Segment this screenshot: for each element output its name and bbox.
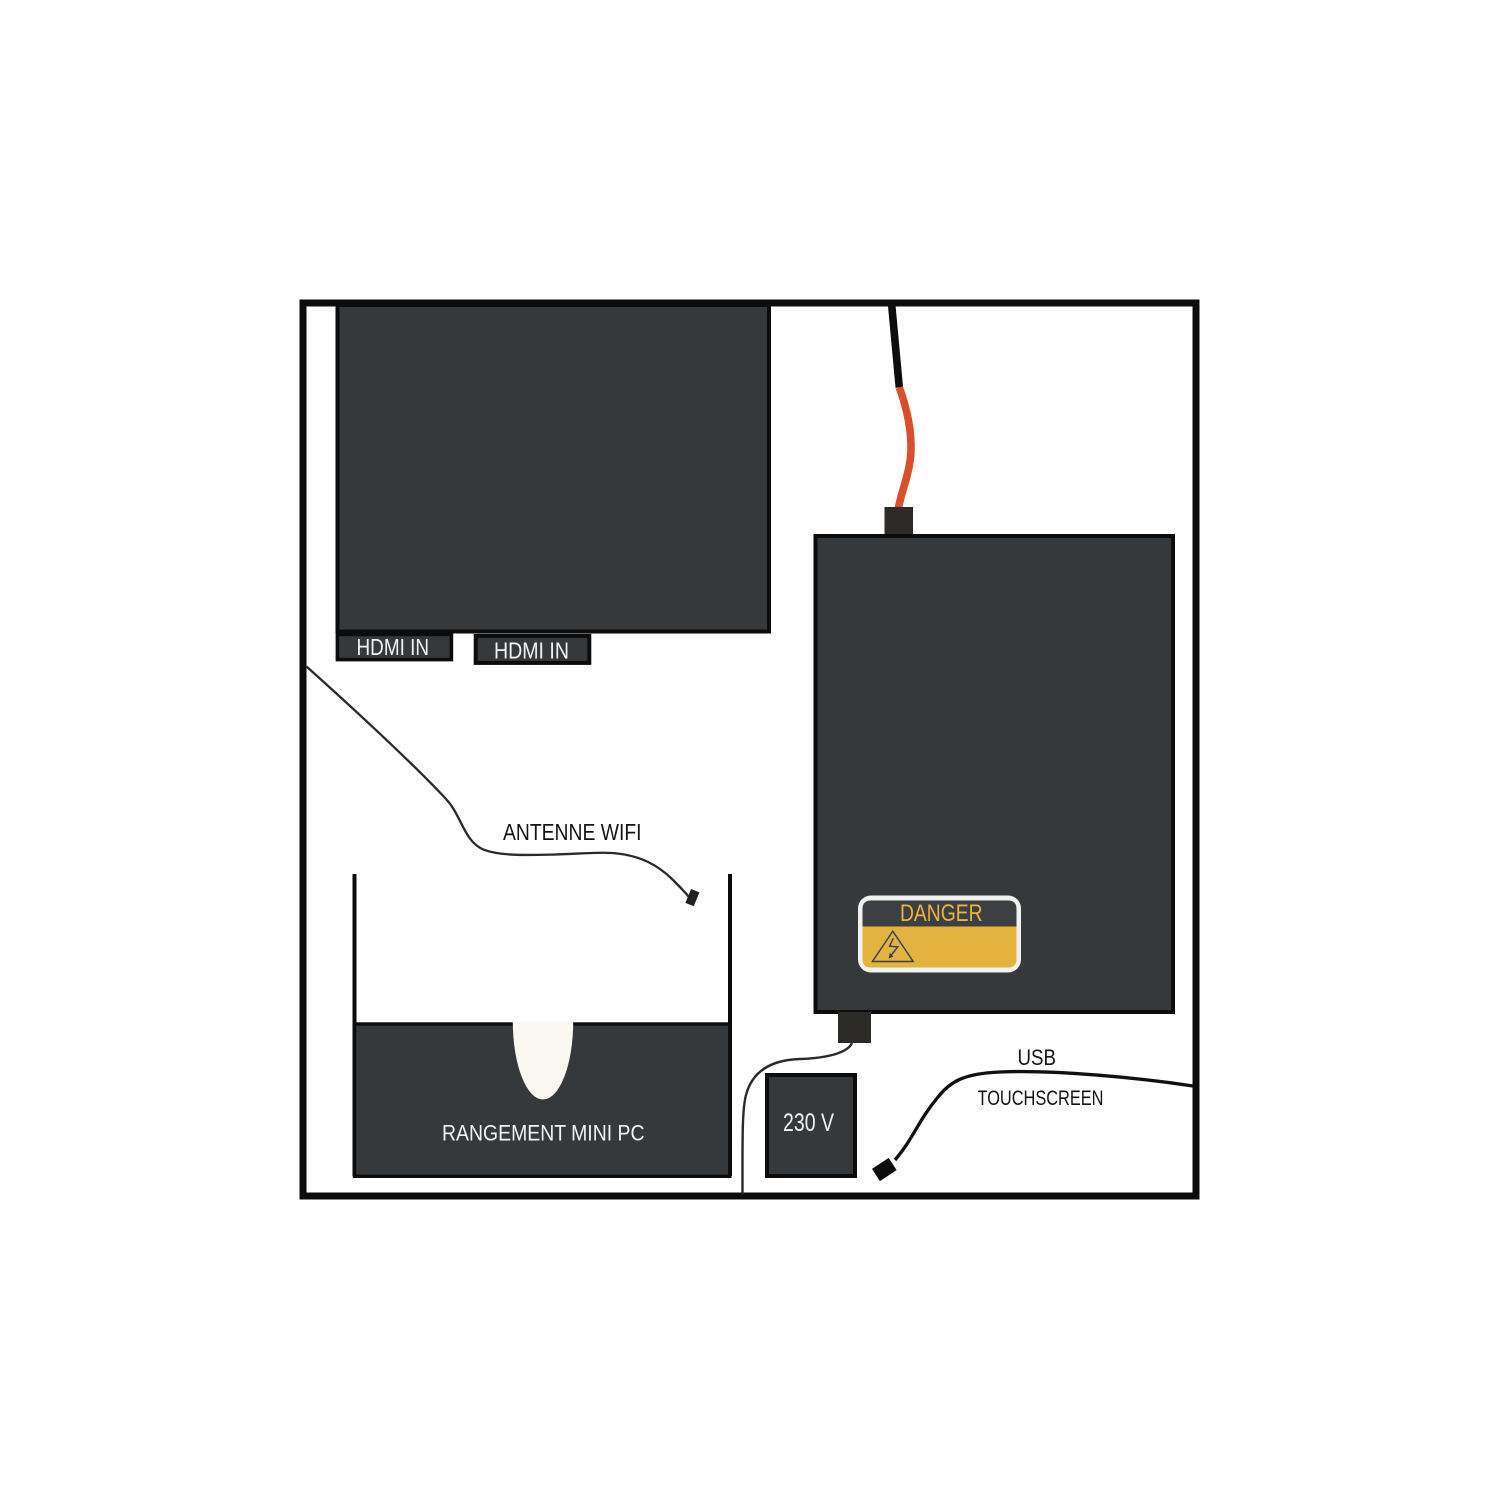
svg-text:230 V: 230 V xyxy=(783,1109,834,1137)
svg-text:HDMI IN: HDMI IN xyxy=(357,634,430,660)
svg-text:USB: USB xyxy=(1018,1045,1057,1070)
svg-text:DANGER: DANGER xyxy=(900,900,983,927)
svg-text:RANGEMENT MINI PC: RANGEMENT MINI PC xyxy=(442,1121,645,1146)
svg-text:TOUCHSCREEN: TOUCHSCREEN xyxy=(978,1086,1104,1110)
svg-text:HDMI IN: HDMI IN xyxy=(494,638,569,664)
svg-text:ANTENNE WIFI: ANTENNE WIFI xyxy=(503,819,642,845)
